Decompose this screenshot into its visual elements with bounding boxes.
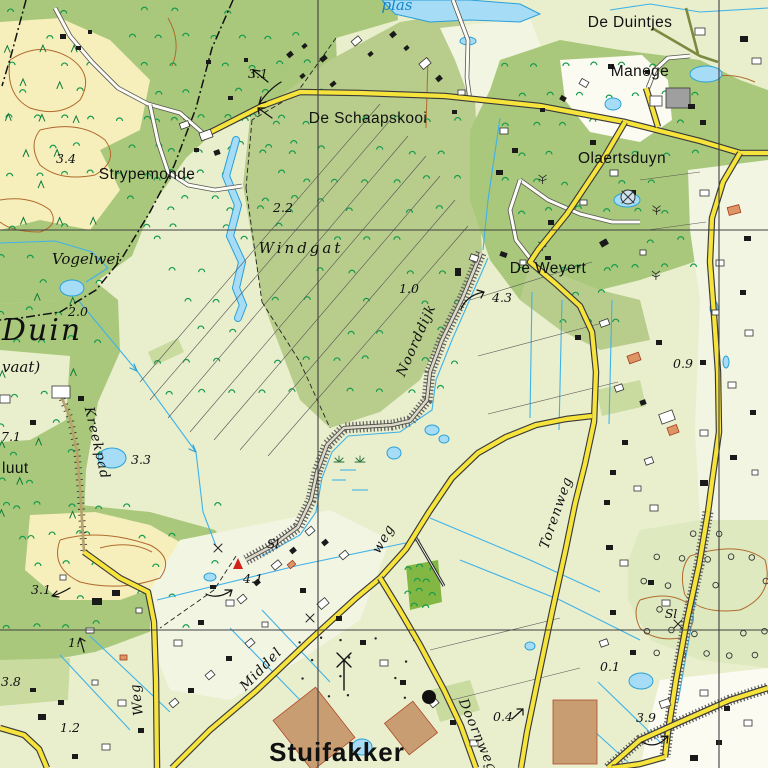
building xyxy=(188,688,194,693)
building xyxy=(450,720,456,725)
building xyxy=(400,680,406,685)
building xyxy=(690,755,698,761)
building xyxy=(194,148,199,152)
map-label: 0.9 xyxy=(673,356,693,371)
map-label: Windgat xyxy=(259,239,344,257)
building xyxy=(622,440,628,445)
map-label: 4.3 xyxy=(491,290,512,305)
building xyxy=(695,28,705,35)
map-label: plas xyxy=(381,0,412,14)
building xyxy=(620,560,628,566)
map-label: 3.9 xyxy=(636,710,656,725)
building xyxy=(700,430,708,436)
building xyxy=(92,598,102,605)
map-label: 3.1 xyxy=(31,582,51,597)
building xyxy=(688,104,695,109)
building xyxy=(226,600,234,606)
building xyxy=(76,46,81,50)
building xyxy=(78,396,84,401)
building xyxy=(606,545,613,550)
map-label: 2.2 xyxy=(272,200,293,215)
building xyxy=(60,34,66,39)
building xyxy=(458,90,465,95)
map-label: vaat) xyxy=(2,358,40,376)
map-label: Strypemonde xyxy=(99,166,196,183)
building xyxy=(210,585,216,589)
building xyxy=(300,588,306,593)
building xyxy=(700,190,709,196)
building xyxy=(740,36,748,42)
building xyxy=(174,640,182,646)
map-label: 2.0 xyxy=(67,304,88,319)
map-label: luut xyxy=(2,460,29,477)
map-label: De Weyert xyxy=(510,260,587,277)
building xyxy=(262,622,268,627)
map-label: De Duintjes xyxy=(588,14,673,31)
building xyxy=(590,140,596,145)
building xyxy=(112,590,120,596)
building xyxy=(360,640,366,645)
building xyxy=(500,128,508,134)
building xyxy=(88,30,92,34)
map-label: Stuifakker xyxy=(269,737,405,767)
building xyxy=(540,108,545,112)
building xyxy=(92,680,98,685)
building xyxy=(744,236,751,241)
map-label: 3.1 xyxy=(248,66,268,81)
building xyxy=(580,200,587,205)
building xyxy=(728,382,736,388)
building xyxy=(716,260,724,266)
building xyxy=(740,290,746,295)
building xyxy=(745,330,753,336)
map-label: De Schaapskooi xyxy=(309,110,427,127)
building xyxy=(750,410,756,415)
building xyxy=(700,690,708,696)
building xyxy=(136,608,142,613)
map-canvas: plasDe DuintjesManegeDe SchaapskooiOlaer… xyxy=(0,0,768,768)
building xyxy=(604,500,610,505)
building xyxy=(700,360,706,365)
building xyxy=(548,220,554,225)
building xyxy=(752,470,758,475)
building xyxy=(138,728,144,733)
building xyxy=(228,96,233,100)
building xyxy=(380,660,388,666)
map-label: 0.1 xyxy=(600,659,620,674)
building xyxy=(118,700,126,706)
building xyxy=(452,110,457,114)
building xyxy=(630,650,636,655)
map-label: Vogelwei xyxy=(52,250,120,268)
building xyxy=(244,58,248,62)
building xyxy=(700,120,706,125)
topographic-map: plasDe DuintjesManegeDe SchaapskooiOlaer… xyxy=(0,0,768,768)
building xyxy=(52,386,70,398)
building xyxy=(724,706,730,711)
building xyxy=(610,470,616,475)
building xyxy=(512,148,518,153)
building xyxy=(496,170,503,175)
map-label: Sl xyxy=(665,606,678,621)
building xyxy=(455,268,461,276)
building xyxy=(30,688,36,692)
building xyxy=(336,616,342,621)
building xyxy=(610,610,616,615)
silo-icon xyxy=(422,690,436,704)
building xyxy=(0,395,10,403)
map-label: 1.2 xyxy=(60,720,80,735)
building xyxy=(226,656,232,661)
building xyxy=(730,455,737,460)
map-label: 3.8 xyxy=(1,674,21,689)
building xyxy=(650,96,662,106)
map-label: 3.3 xyxy=(131,452,151,467)
building xyxy=(102,744,110,750)
building xyxy=(553,700,597,764)
map-label: Manege xyxy=(611,63,669,80)
building xyxy=(752,58,761,64)
building xyxy=(712,310,719,315)
building xyxy=(700,480,708,486)
building xyxy=(610,170,618,176)
building xyxy=(206,60,211,64)
building xyxy=(634,486,641,491)
building xyxy=(575,335,581,340)
building xyxy=(58,700,64,705)
building xyxy=(60,575,66,580)
building xyxy=(30,420,36,425)
map-label: 4.1 xyxy=(242,571,263,586)
building xyxy=(666,88,690,108)
map-label: 1.0 xyxy=(399,281,419,296)
map-label: 0.4 xyxy=(493,709,513,724)
building xyxy=(640,250,646,255)
building xyxy=(120,655,127,660)
map-label: Olaertsduyn xyxy=(578,150,666,167)
building xyxy=(650,505,658,511)
map-label: 3.4 xyxy=(56,151,76,166)
map-label: 7.1 xyxy=(1,429,21,444)
map-label: 1. xyxy=(68,635,80,650)
building xyxy=(38,714,46,720)
building xyxy=(198,620,204,625)
building xyxy=(72,754,78,759)
building xyxy=(744,720,752,726)
building xyxy=(648,580,654,585)
building xyxy=(656,340,662,345)
map-label: Sl xyxy=(267,536,280,551)
